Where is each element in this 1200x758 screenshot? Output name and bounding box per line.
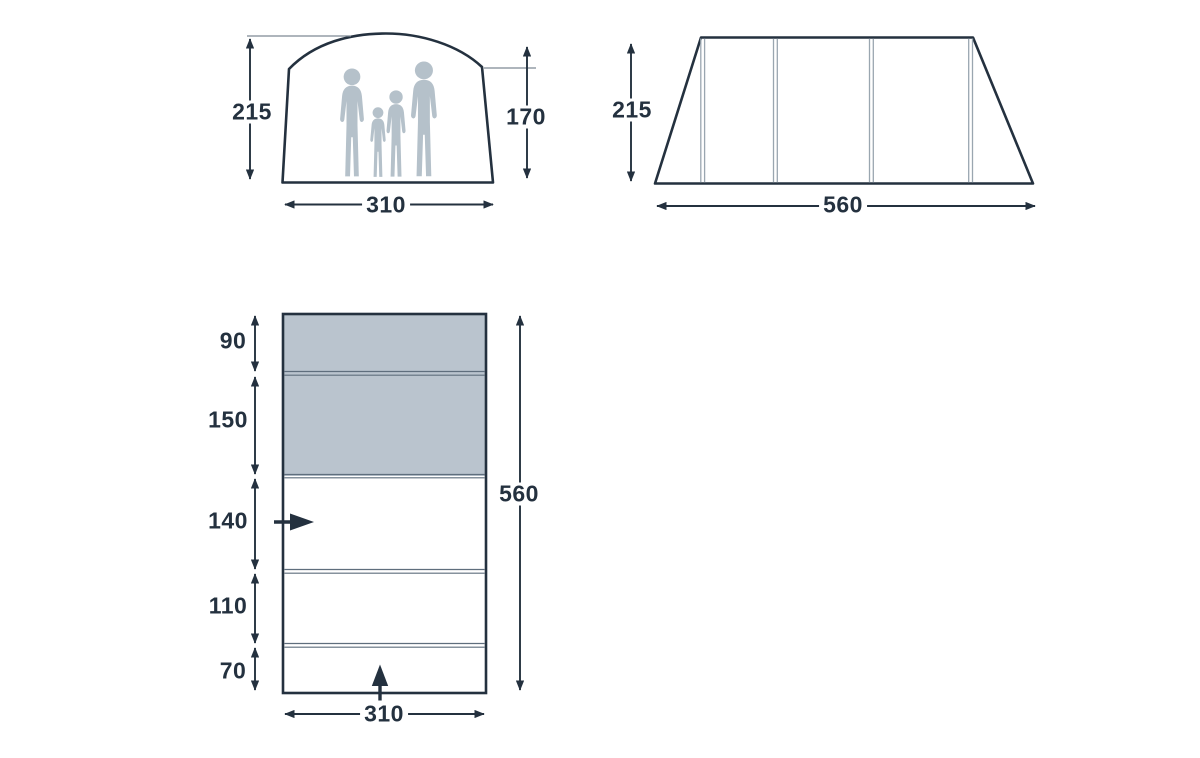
side-length-label: 560 — [819, 194, 867, 217]
front-peak-height-label: 215 — [228, 101, 276, 124]
floorplan-shaded-area — [284, 315, 485, 476]
floorplan-width-label: 310 — [360, 703, 408, 726]
diagram-line-art — [0, 0, 1200, 758]
floorplan-section-90-label: 90 — [216, 330, 251, 353]
side-door-arrow-icon — [274, 514, 314, 531]
floorplan-section-150-label: 150 — [204, 409, 252, 432]
side-height-label: 215 — [608, 99, 656, 122]
floor-plan-drawing — [255, 314, 520, 714]
front-wall-height-label: 170 — [502, 106, 550, 129]
tent-side-outline — [655, 38, 1033, 184]
side-view-drawing — [631, 38, 1035, 207]
tent-dimensions-diagram: 215 170 310 215 560 90 150 140 110 70 56… — [0, 0, 1200, 758]
floorplan-total-depth-label: 560 — [495, 483, 543, 506]
front-view-drawing — [247, 34, 536, 205]
floorplan-section-110-label: 110 — [205, 595, 252, 618]
floorplan-section-70-label: 70 — [216, 660, 251, 683]
floorplan-section-140-label: 140 — [204, 510, 252, 533]
front-width-label: 310 — [362, 194, 410, 217]
tent-front-outline — [283, 34, 494, 183]
front-door-arrow-icon — [372, 665, 388, 701]
